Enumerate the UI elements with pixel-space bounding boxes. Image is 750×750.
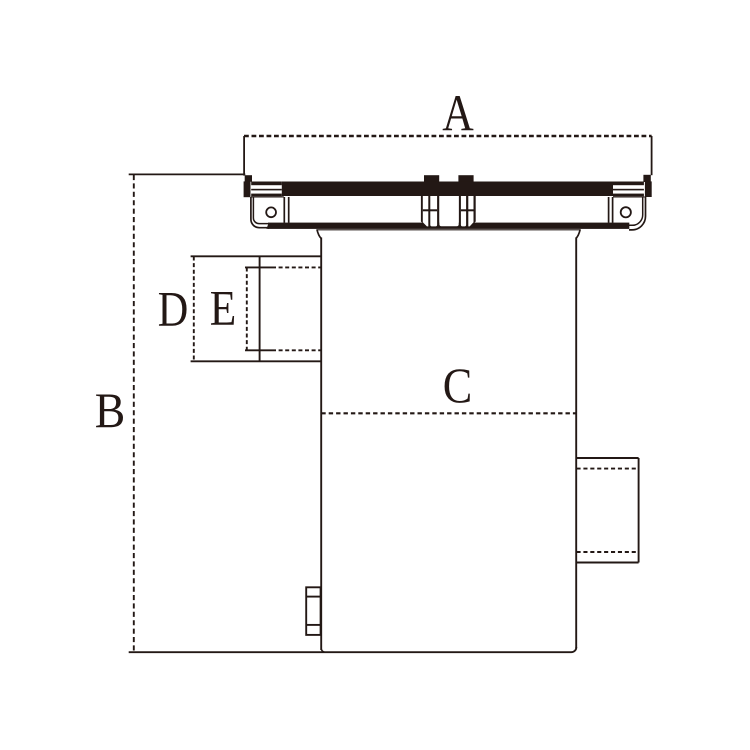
svg-text:D: D [158, 281, 189, 337]
svg-text:E: E [210, 280, 237, 336]
svg-text:A: A [442, 86, 474, 143]
svg-text:C: C [443, 357, 473, 413]
svg-text:B: B [95, 382, 126, 438]
